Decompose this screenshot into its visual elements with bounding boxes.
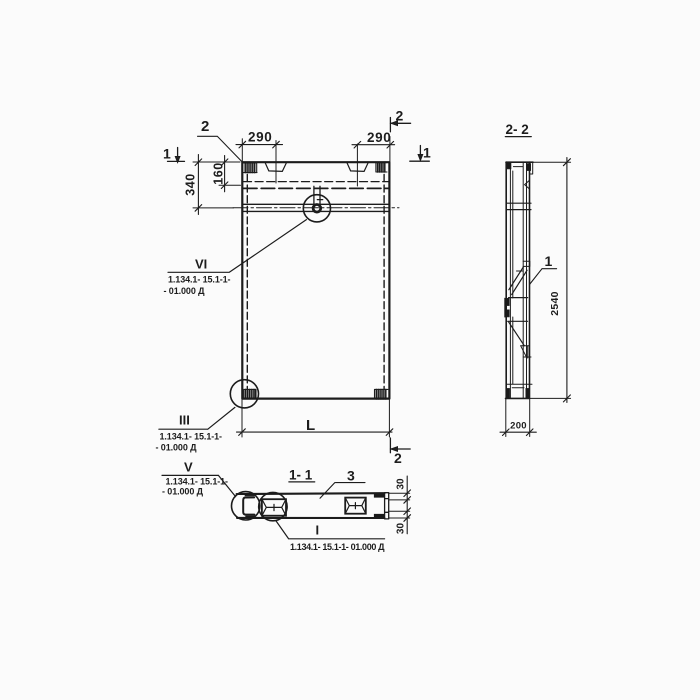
svg-text:- 01.000 Д: - 01.000 Д bbox=[164, 286, 206, 296]
svg-text:1: 1 bbox=[423, 145, 431, 161]
svg-text:- 01.000 Д: - 01.000 Д bbox=[156, 443, 198, 453]
svg-text:1.134.1- 15.1-1- 01.000 Д: 1.134.1- 15.1-1- 01.000 Д bbox=[290, 542, 385, 552]
svg-text:30: 30 bbox=[396, 478, 407, 490]
svg-text:2: 2 bbox=[394, 450, 402, 466]
svg-text:2: 2 bbox=[396, 108, 404, 124]
svg-text:1: 1 bbox=[163, 146, 171, 162]
svg-text:290: 290 bbox=[248, 130, 272, 145]
svg-text:340: 340 bbox=[184, 173, 198, 195]
svg-text:- 01.000 Д: - 01.000 Д bbox=[162, 487, 204, 497]
svg-text:VI: VI bbox=[195, 257, 207, 272]
svg-text:1- 1: 1- 1 bbox=[289, 468, 313, 483]
svg-text:30: 30 bbox=[396, 523, 407, 535]
svg-text:1.134.1- 15.1-1-: 1.134.1- 15.1-1- bbox=[166, 477, 229, 487]
svg-text:1: 1 bbox=[545, 253, 553, 269]
svg-text:160: 160 bbox=[212, 162, 226, 184]
svg-text:I: I bbox=[316, 523, 320, 538]
svg-text:290: 290 bbox=[367, 130, 391, 145]
svg-text:2- 2: 2- 2 bbox=[506, 122, 529, 137]
svg-text:1.134.1- 15.1-1-: 1.134.1- 15.1-1- bbox=[168, 275, 231, 285]
svg-text:3: 3 bbox=[347, 468, 355, 484]
svg-text:200: 200 bbox=[510, 420, 527, 431]
svg-text:2540: 2540 bbox=[549, 291, 561, 316]
svg-text:1.134.1- 15.1-1-: 1.134.1- 15.1-1- bbox=[160, 432, 223, 442]
svg-text:V: V bbox=[184, 460, 193, 475]
svg-text:III: III bbox=[179, 413, 190, 428]
svg-text:L: L bbox=[306, 417, 315, 434]
svg-text:2: 2 bbox=[201, 118, 209, 135]
